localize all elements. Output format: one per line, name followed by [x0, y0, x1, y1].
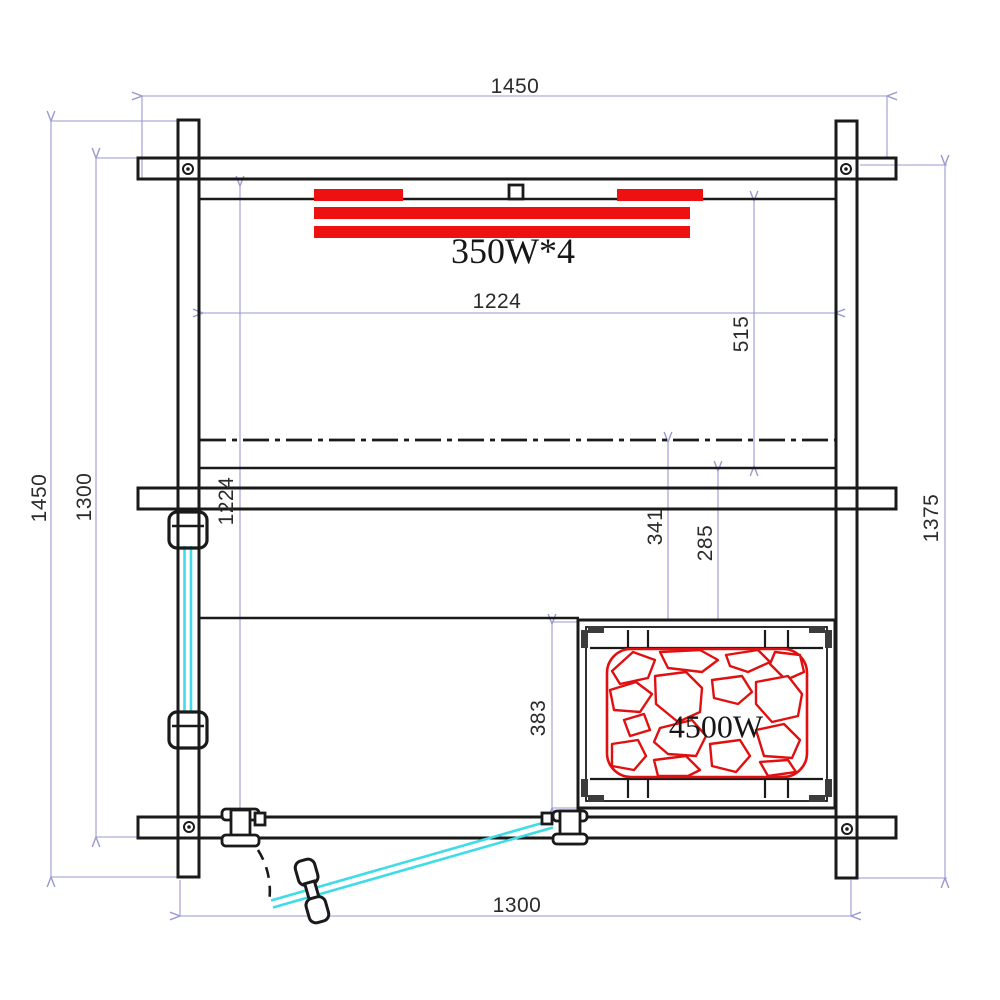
dim-inner-width: 1224: [473, 290, 522, 314]
heater-panel-bar: [314, 207, 690, 219]
heater-panel-bar: [617, 189, 703, 201]
sauna-plan-drawing: 1450 1450 1300 1224 1224 515 341 285 137…: [0, 0, 1000, 1000]
plan-linework: [0, 0, 1000, 1000]
glass-hinge-icon: [169, 512, 207, 548]
middle-rail: [138, 488, 896, 509]
dim-right-height: 1375: [920, 494, 944, 543]
dim-inner-height: 1224: [215, 477, 239, 526]
right-post: [836, 121, 857, 878]
ceiling-heaters-power-label: 350W*4: [451, 230, 575, 272]
dim-bench-to-heater: 285: [694, 525, 718, 562]
dim-left-inner-height: 1300: [73, 473, 97, 522]
glass-hinge-icon: [169, 712, 207, 748]
dim-center-to-heater: 341: [644, 509, 668, 546]
top-rail: [138, 158, 896, 179]
heater-panel-bar: [314, 189, 403, 201]
door-latch-icon: [222, 809, 265, 846]
side-glass-panel: [169, 512, 207, 748]
door-swing-arc: [258, 850, 270, 903]
control-sensor-box: [509, 185, 523, 199]
dim-top-width: 1450: [491, 75, 540, 99]
door-handle-icon: [294, 857, 331, 924]
left-post: [178, 120, 199, 877]
dim-heater-depth: 383: [527, 700, 551, 737]
dim-left-outer-height: 1450: [28, 474, 52, 523]
stove-power-label: 4500W: [669, 709, 763, 746]
dim-bottom-width: 1300: [493, 894, 542, 918]
dim-back-to-bench: 515: [730, 316, 754, 353]
